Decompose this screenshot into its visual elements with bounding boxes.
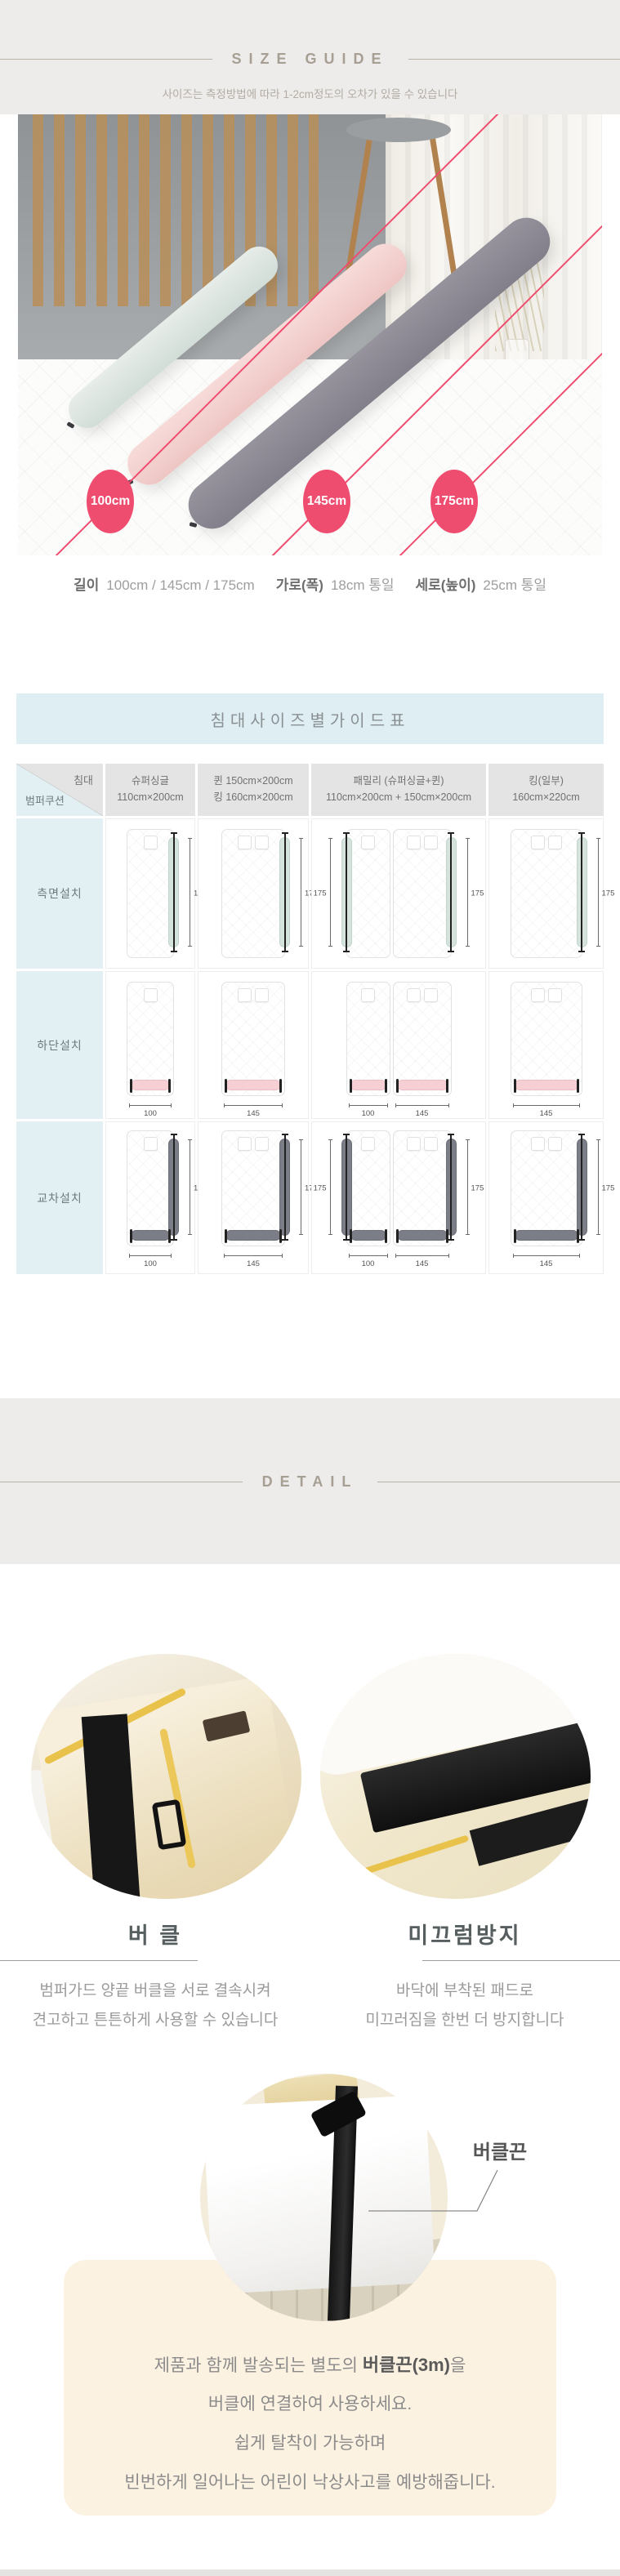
length-value: 175 xyxy=(314,889,327,898)
mattress-graphic: 175 xyxy=(511,829,582,958)
buckle-caption-title: 버 클 xyxy=(0,1918,310,1950)
pillow-graphic xyxy=(255,836,269,849)
vertical-dimension-line xyxy=(301,838,301,947)
mattress-graphic: 100 xyxy=(127,982,174,1096)
divider-line xyxy=(0,1482,243,1482)
pillow-graphic xyxy=(361,1137,375,1151)
pillow-graphic xyxy=(548,988,562,1002)
bottom-bumper-graphic xyxy=(350,1230,386,1241)
pillow-graphic xyxy=(144,1137,158,1151)
note-text: 쉽게 탈착이 가능하며 xyxy=(234,2434,386,2453)
note-text: 제품과 함께 발송되는 별도의 xyxy=(154,2356,363,2375)
pillow-graphic xyxy=(531,988,545,1002)
corner-label-bed: 침대 xyxy=(74,772,93,787)
note-text: 빈번하게 일어나는 어린이 낙상사고를 예방해줍니다. xyxy=(124,2473,495,2492)
side-bumper-graphic xyxy=(446,1139,457,1236)
bed-diagram: 145 xyxy=(393,982,452,1118)
bottom-bumper-graphic xyxy=(225,1080,281,1090)
pillow-graphic xyxy=(548,1137,562,1151)
pillow-row xyxy=(394,1137,451,1151)
bed-diagram: 175145 xyxy=(511,1130,582,1273)
side-bumper-graphic xyxy=(446,837,457,947)
horizontal-dimension-line xyxy=(513,1105,580,1106)
vertical-dimension-line xyxy=(190,838,190,947)
table-cell: 175175 xyxy=(311,818,486,969)
row-label: 교차설치 xyxy=(16,1121,103,1274)
note-line: 제품과 함께 발송되는 별도의 버클끈(3m)을 xyxy=(64,2346,556,2385)
bed-diagram: 145 xyxy=(221,982,285,1118)
length-badge: 175cm xyxy=(430,470,478,533)
bed-diagram: 175100 xyxy=(346,1130,390,1273)
table-cell: 175 xyxy=(488,818,604,969)
table-cell: 175100 xyxy=(105,1121,195,1274)
length-value: 175 xyxy=(602,1184,615,1193)
table-corner-cell: 침대범퍼쿠션 xyxy=(16,764,103,816)
strap-note: 제품과 함께 발송되는 별도의 버클끈(3m)을버클에 연결하여 사용하세요.쉽… xyxy=(64,2346,556,2502)
bed-diagram: 100 xyxy=(127,982,174,1118)
measure-pin xyxy=(450,1134,452,1241)
note-highlight: 버클끈(3m) xyxy=(363,2355,450,2375)
size-guide-heading: SIZE GUIDE xyxy=(0,51,620,68)
length-value: 175 xyxy=(314,1184,327,1193)
antislip-photo xyxy=(320,1654,591,1899)
column-header-0: 슈퍼싱글110cm×200cm xyxy=(105,764,195,816)
side-bumper-graphic xyxy=(168,837,179,947)
vertical-dimension-line xyxy=(330,838,331,947)
pillow-row xyxy=(127,836,173,849)
pillow-graphic xyxy=(424,836,438,849)
caption-underline xyxy=(0,1960,198,1961)
header-line: 킹 160cm×200cm xyxy=(198,791,309,804)
pillow-graphic xyxy=(424,1137,438,1151)
size-guide-title: SIZE GUIDE xyxy=(232,51,389,68)
pillow-row xyxy=(511,836,582,849)
pillow-graphic xyxy=(144,836,158,849)
header-line: 110cm×200cm + 150cm×200cm xyxy=(311,791,486,804)
side-bumper-graphic xyxy=(279,1139,290,1236)
table-cell: 100 xyxy=(105,971,195,1119)
pillow-row xyxy=(347,988,390,1002)
pillow-row xyxy=(222,988,284,1002)
header-line: 패밀리 (슈퍼싱글+퀸) xyxy=(311,775,486,788)
header-line: 160cm×220cm xyxy=(488,791,604,804)
note-line: 빈번하게 일어나는 어린이 낙상사고를 예방해줍니다. xyxy=(64,2463,556,2502)
divider-line xyxy=(408,59,620,60)
size-table-title: 침대사이즈별가이드표 xyxy=(16,693,604,744)
pillow-row xyxy=(511,1137,582,1151)
vertical-dimension-line xyxy=(467,838,468,947)
size-guide-section: SIZE GUIDE 사이즈는 측정방법에 따라 1-2cm정도의 오차가 있을… xyxy=(0,0,620,114)
mattress-graphic: 145 xyxy=(511,982,582,1096)
horizontal-dimension-line xyxy=(349,1105,388,1106)
spec-group: 세로(높이)25cm 통일 xyxy=(416,573,546,594)
mattress-graphic: 175145 xyxy=(221,1130,285,1246)
divider-line xyxy=(377,1482,620,1482)
measure-pin xyxy=(284,832,286,952)
spec-label: 길이 xyxy=(74,573,99,594)
detail-title: DETAIL xyxy=(262,1473,359,1491)
spec-value: 25cm 통일 xyxy=(483,573,546,594)
length-value: 175 xyxy=(602,889,615,898)
header-line: 110cm×200cm xyxy=(105,791,195,804)
measure-pin xyxy=(173,832,175,952)
product-photo: 100cm145cm175cm xyxy=(18,114,602,555)
measure-pin xyxy=(346,832,347,952)
horizontal-dimension-line xyxy=(513,1255,580,1256)
table-cell: 100145 xyxy=(311,971,486,1119)
spec-label: 가로(폭) xyxy=(276,573,323,594)
mattress-graphic: 145 xyxy=(221,982,285,1096)
table-cell: 175 xyxy=(198,818,309,969)
pillow-row xyxy=(394,836,451,849)
header-line: 퀸 150cm×200cm xyxy=(198,775,309,788)
bed-diagram: 175 xyxy=(393,829,452,968)
horizontal-dimension-line xyxy=(349,1255,388,1256)
mattress-graphic: 175145 xyxy=(393,1130,452,1246)
side-bumper-graphic xyxy=(279,837,290,947)
mattress-graphic: 100 xyxy=(346,982,390,1096)
side-bumper-graphic xyxy=(341,837,352,947)
column-header-1: 퀸 150cm×200cm킹 160cm×200cm xyxy=(198,764,309,816)
divider-line xyxy=(0,59,212,60)
pillow-row xyxy=(127,1137,173,1151)
bottom-bumper-graphic xyxy=(397,1230,448,1241)
width-value: 100 xyxy=(347,1259,390,1268)
column-header-2: 패밀리 (슈퍼싱글+퀸)110cm×200cm + 150cm×200cm xyxy=(311,764,486,816)
horizontal-dimension-line xyxy=(224,1255,283,1256)
table-cell: 175100175145 xyxy=(311,1121,486,1274)
width-value: 145 xyxy=(511,1259,582,1268)
pillow-graphic xyxy=(238,836,252,849)
pillow-graphic xyxy=(255,988,269,1002)
spec-value: 100cm / 145cm / 175cm xyxy=(106,577,254,594)
measure-pin xyxy=(581,832,582,952)
bed-diagram: 175145 xyxy=(393,1130,452,1273)
bed-diagram: 175 xyxy=(221,829,285,968)
pillow-graphic xyxy=(407,836,421,849)
strap-leader-line xyxy=(0,2042,620,2254)
pillow-graphic xyxy=(144,988,158,1002)
pillow-graphic xyxy=(255,1137,269,1151)
table-cell: 145 xyxy=(198,971,309,1119)
bed-diagram: 175 xyxy=(511,829,582,968)
corner-label-cushion: 범퍼쿠션 xyxy=(25,792,65,808)
mattress-graphic: 175100 xyxy=(346,1130,390,1246)
note-line: 쉽게 탈착이 가능하며 xyxy=(64,2424,556,2463)
bottom-bumper-graphic xyxy=(225,1230,281,1241)
horizontal-dimension-line xyxy=(395,1105,449,1106)
buckle-caption-desc: 범퍼가드 양끝 버클을 서로 결속시켜 견고하고 튼튼하게 사용할 수 있습니다 xyxy=(0,1977,310,2035)
header-line: 킹(일부) xyxy=(488,775,604,788)
antislip-caption-title: 미끄럼방지 xyxy=(310,1918,620,1950)
bottom-bumper-graphic xyxy=(131,1080,170,1090)
pillow-row xyxy=(222,836,284,849)
product-detail-page: SIZE GUIDE 사이즈는 측정방법에 따라 1-2cm정도의 오차가 있을… xyxy=(0,0,620,2576)
vertical-dimension-line xyxy=(301,1139,301,1235)
size-guide-subtitle: 사이즈는 측정방법에 따라 1-2cm정도의 오차가 있을 수 있습니다 xyxy=(0,85,620,101)
pillow-graphic xyxy=(531,836,545,849)
vertical-dimension-line xyxy=(598,1139,599,1235)
note-text: 버클에 연결하여 사용하세요. xyxy=(208,2395,412,2413)
side-bumper-graphic xyxy=(577,1139,587,1236)
note-text: 을 xyxy=(450,2356,466,2375)
side-bumper-graphic xyxy=(577,837,587,947)
pillow-row xyxy=(347,1137,390,1151)
measure-pin xyxy=(581,1134,582,1241)
bed-diagram: 175 xyxy=(127,829,174,968)
vertical-dimension-line xyxy=(598,838,599,947)
horizontal-dimension-line xyxy=(129,1255,172,1256)
vertical-dimension-line xyxy=(467,1139,468,1235)
table-cell: 175 xyxy=(105,818,195,969)
table-cell: 175145 xyxy=(488,1121,604,1274)
mattress-graphic: 145 xyxy=(393,982,452,1096)
pillow-row xyxy=(511,988,582,1002)
spec-value: 18cm 통일 xyxy=(331,573,395,594)
side-bumper-graphic xyxy=(168,1139,179,1236)
note-line: 버클에 연결하여 사용하세요. xyxy=(64,2385,556,2424)
width-value: 145 xyxy=(394,1259,451,1268)
mattress-graphic: 175 xyxy=(127,829,174,958)
bed-diagram: 100 xyxy=(346,982,390,1118)
piping-graphic xyxy=(320,1835,469,1892)
width-value: 100 xyxy=(127,1259,173,1268)
spec-group: 길이100cm / 145cm / 175cm xyxy=(74,573,255,594)
pillow-graphic xyxy=(238,1137,252,1151)
mattress-graphic: 175 xyxy=(346,829,390,958)
bottom-bumper-graphic xyxy=(515,1230,578,1241)
spec-group: 가로(폭)18cm 통일 xyxy=(276,573,395,594)
column-header-3: 킹(일부)160cm×220cm xyxy=(488,764,604,816)
mattress-graphic: 175145 xyxy=(511,1130,582,1246)
pillow-row xyxy=(222,1137,284,1151)
bed-diagram: 175145 xyxy=(221,1130,285,1273)
measure-pin xyxy=(450,832,452,952)
length-value: 175 xyxy=(471,889,484,898)
length-value: 175 xyxy=(471,1184,484,1193)
bed-diagram: 175100 xyxy=(127,1130,174,1273)
mattress-graphic: 175 xyxy=(221,829,285,958)
row-label: 측면설치 xyxy=(16,818,103,969)
spec-label: 세로(높이) xyxy=(416,573,476,594)
pillow-graphic xyxy=(548,836,562,849)
bottom-bumper-graphic xyxy=(515,1080,578,1090)
width-value: 100 xyxy=(347,1109,390,1118)
length-badge: 145cm xyxy=(303,470,350,533)
bed-size-guide-table: 침대범퍼쿠션슈퍼싱글110cm×200cm퀸 150cm×200cm킹 160c… xyxy=(16,764,604,1274)
detail-heading: DETAIL xyxy=(0,1473,620,1491)
detail-section: DETAIL xyxy=(0,1398,620,1564)
pillow-graphic xyxy=(531,1137,545,1151)
pillow-graphic xyxy=(238,988,252,1002)
row-label: 하단설치 xyxy=(16,971,103,1119)
pillow-graphic xyxy=(407,988,421,1002)
width-value: 145 xyxy=(222,1259,284,1268)
width-value: 100 xyxy=(127,1109,173,1118)
table-cell: 145 xyxy=(488,971,604,1119)
horizontal-dimension-line xyxy=(129,1105,172,1106)
length-badge: 100cm xyxy=(87,470,134,533)
pillow-graphic xyxy=(424,988,438,1002)
bottom-bumper-graphic xyxy=(131,1230,170,1241)
mattress-graphic: 175 xyxy=(393,829,452,958)
width-value: 145 xyxy=(222,1109,284,1118)
side-bumper-graphic xyxy=(341,1139,352,1236)
vertical-dimension-line xyxy=(330,1139,331,1235)
bottom-bumper-graphic xyxy=(350,1080,386,1090)
pillow-row xyxy=(347,836,390,849)
horizontal-dimension-line xyxy=(224,1105,283,1106)
dimension-specs: 길이100cm / 145cm / 175cm가로(폭)18cm 통일세로(높이… xyxy=(0,573,620,594)
measure-pin xyxy=(346,1134,347,1241)
table-cell: 175145 xyxy=(198,1121,309,1274)
bed-diagram: 175 xyxy=(346,829,390,968)
width-value: 145 xyxy=(394,1109,451,1118)
cushion-graphic xyxy=(32,1676,301,1899)
section-divider xyxy=(0,2569,620,2576)
pillow-row xyxy=(127,988,173,1002)
vertical-dimension-line xyxy=(190,1139,190,1235)
header-line: 슈퍼싱글 xyxy=(105,775,195,788)
pillow-graphic xyxy=(407,1137,421,1151)
buckle-photo xyxy=(31,1654,301,1899)
bottom-bumper-graphic xyxy=(397,1080,448,1090)
measure-pin xyxy=(284,1134,286,1241)
caption-underline xyxy=(422,1960,620,1961)
pillow-graphic xyxy=(361,836,375,849)
measure-pin xyxy=(173,1134,175,1241)
antislip-caption-desc: 바닥에 부착된 패드로 미끄러짐을 한번 더 방지합니다 xyxy=(310,1977,620,2035)
mattress-graphic: 175100 xyxy=(127,1130,174,1246)
pillow-row xyxy=(394,988,451,1002)
bed-diagram: 145 xyxy=(511,982,582,1118)
pillow-graphic xyxy=(361,988,375,1002)
horizontal-dimension-line xyxy=(395,1255,449,1256)
width-value: 145 xyxy=(511,1109,582,1118)
